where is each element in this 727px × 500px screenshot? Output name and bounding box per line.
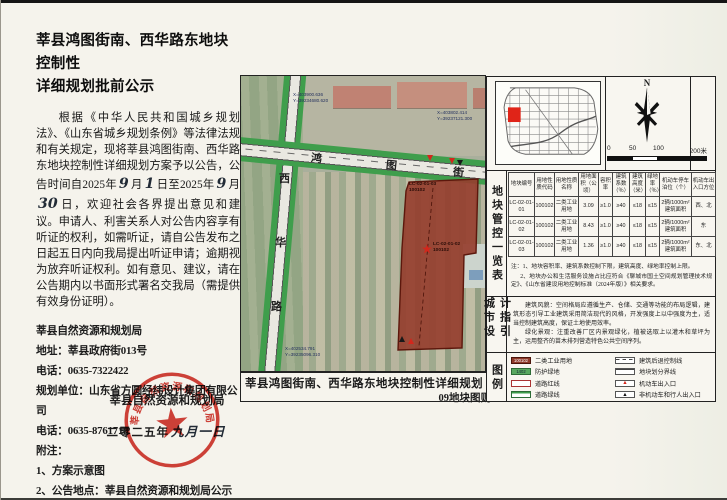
table-cell: ≤15 [646, 237, 660, 257]
table-cell: 二类工业用地 [555, 197, 579, 217]
table-cell: 2辆/1000m²建筑面积 [660, 217, 692, 237]
table-cell: 100102 [535, 217, 555, 237]
control-table-section: 地块管控一览表 地块编号用地性质代码用地性质名称用地面积（公顷）容积率建筑系数（… [487, 171, 715, 297]
parcel-usecode: 100102 [409, 188, 436, 194]
scan-edge-top [0, 0, 727, 3]
legend-item: 建筑后退控制线 [615, 356, 713, 364]
table-cell: 3.09 [579, 197, 599, 217]
table-cell: ≤18 [630, 197, 646, 217]
announcement-paragraph: 根据《中华人民共和国城乡规划法》、《山东省城乡规划条例》等法律法规和有关规定，现… [36, 110, 240, 310]
table-cell: LC-02-01-03 [509, 237, 535, 257]
map-sheet-number: 09地块图则 [241, 390, 501, 405]
table-header-cell: 建筑系数（％） [613, 173, 630, 197]
table-cell: ≥40 [613, 237, 630, 257]
urban-design-text: 建筑风貌：空间格局应遵循生产、仓储、交通等功能的布局逻辑，建筑形态引导工业建筑采… [513, 302, 710, 347]
table-row: LC-02-01-02100102二类工业用地8.43≥1.0≥40≤18≤15… [509, 217, 716, 237]
table-cell: 东、北 [692, 237, 716, 257]
table-notes: 注：1、地块容积率、建筑系数控制下限，建筑高度、绿地率控制上限。 2、地块办公和… [511, 263, 712, 291]
official-seal: 莘县自然资源和规划局 [115, 363, 229, 477]
table-cell: ≤15 [646, 197, 660, 217]
legend-item: 地块划分界线 [615, 368, 713, 376]
legend-col-left: 100102二类工业用地1402防护绿地道路红线道路绿线 [511, 356, 609, 399]
legend-label: 道路红线 [535, 379, 560, 388]
scale-tick-label: 0 [607, 145, 611, 152]
handwritten-month: 9 [117, 176, 131, 192]
control-table-head: 地块编号用地性质代码用地性质名称用地面积（公顷）容积率建筑系数（％）建筑高度（米… [509, 173, 716, 197]
road-name-char: 华 [275, 234, 286, 250]
legend-label: 非机动车和行人出入口 [639, 390, 701, 399]
legend-swatch-setback-icon [615, 357, 635, 364]
legend-col-right: 建筑后退控制线地块划分界线▲机动车出入口▲非机动车和行人出入口 [615, 356, 713, 399]
scale-tick-label: 100 [653, 145, 664, 152]
road-name-char: 街 [452, 163, 465, 180]
handwritten-month: 9 [215, 176, 229, 192]
road-name-char: 图 [385, 156, 398, 173]
legend-item: 100102二类工业用地 [511, 356, 609, 364]
legend-section: 图例 100102二类工业用地1402防护绿地道路红线道路绿线 建筑后退控制线地… [487, 353, 715, 402]
page-title-line2: 详细规划批前公示 [36, 76, 240, 99]
parcel-usecode: 100102 [433, 248, 460, 254]
section-label-control-table: 地块管控一览表 [487, 171, 507, 296]
site-location-marker [508, 107, 521, 122]
table-header-cell: 建筑高度（米） [630, 173, 646, 197]
scale-tick-label: 50 [629, 145, 636, 152]
section-label-legend: 图例 [487, 353, 507, 402]
handwritten-day: 1 [143, 176, 157, 192]
legend-label: 防护绿地 [535, 367, 560, 376]
table-cell: ≥40 [613, 217, 630, 237]
table-cell: 二类工业用地 [555, 217, 579, 237]
table-row: LC-02-01-01100102二类工业用地3.09≥1.0≥40≤18≤15… [509, 197, 716, 217]
map-title: 莘县鸿图街南、西华路东地块控制性详细规划 [241, 373, 501, 391]
table-header-cell: 用地面积（公顷） [579, 173, 599, 197]
parcel-label: LC-02-01-03 100102 [409, 182, 436, 194]
plan-map: 鸿 图 街 西 华 路 X=403900.636 Y=39234680.620 … [240, 75, 486, 372]
table-cell: ≥1.0 [599, 197, 613, 217]
inset-map-drawing [496, 82, 600, 164]
table-header-cell: 用地性质名称 [555, 173, 579, 197]
scale-bar: 0 50 100 200米 [607, 145, 707, 167]
control-table-body: LC-02-01-01100102二类工业用地3.09≥1.0≥40≤18≤15… [509, 197, 716, 257]
table-cell: 二类工业用地 [555, 237, 579, 257]
para-segment: 月 [131, 179, 143, 191]
table-header-cell: 地块编号 [509, 173, 535, 197]
legend-swatch-road-red-icon [511, 380, 531, 387]
table-cell: ≥1.0 [599, 237, 613, 257]
legend-item: 道路红线 [511, 379, 609, 387]
table-note-line: 2、地块办公和生活服务设施占比应符合《聊城市国土空间规划管理技术规定》、《山东省… [511, 273, 712, 290]
legend-label: 机动车出入口 [639, 379, 676, 388]
scale-strip [607, 156, 707, 161]
legend: 100102二类工业用地1402防护绿地道路红线道路绿线 建筑后退控制线地块划分… [511, 356, 713, 399]
table-cell: ≤15 [646, 217, 660, 237]
vehicle-entry-marker [427, 155, 433, 161]
table-cell: 2辆/1000m²建筑面积 [660, 237, 692, 257]
table-cell: 8.43 [579, 217, 599, 237]
scan-edge-left [0, 0, 1, 500]
parcel-label: LC-02-01-02 100102 [433, 242, 460, 254]
urban-design-section: 城市设计指引 建筑风貌：空间格局应遵循生产、仓储、交通等功能的布局逻辑，建筑形态… [487, 297, 715, 353]
location-inset-map [495, 81, 601, 165]
section-label-urban-design: 城市设计指引 [487, 297, 507, 352]
table-cell: 西、北 [692, 197, 716, 217]
compass-icon [629, 86, 665, 144]
table-header-cell: 机动车停车泊位（个） [660, 173, 692, 197]
seal-star-icon [155, 406, 189, 439]
legend-label: 道路绿线 [535, 390, 560, 399]
table-cell: ≤18 [630, 237, 646, 257]
control-table: 地块编号用地性质代码用地性质名称用地面积（公顷）容积率建筑系数（％）建筑高度（米… [508, 172, 716, 257]
design-paragraph: 建筑风貌：空间格局应遵循生产、仓储、交通等功能的布局逻辑，建筑形态引导工业建筑采… [513, 302, 710, 329]
map-title-block: 莘县鸿图街南、西华路东地块控制性详细规划 09地块图则 [240, 372, 502, 402]
legend-swatch-protect-green-icon: 1402 [511, 368, 531, 375]
road-name-char: 鸿 [310, 149, 323, 166]
page-title-line1: 莘县鸿图街南、西华路东地块控制性 [36, 30, 240, 76]
coordinate-label: X=402534.791 Y=39235096.310 [285, 346, 320, 358]
table-cell: ≥1.0 [599, 217, 613, 237]
contact-line: 2、公告地点：莘县自然资源和规划局公示栏及网站、项目现场。 [36, 482, 240, 500]
road-name-char: 西 [279, 170, 290, 186]
coordinate-label: X=403802.414 Y=39237121.300 [437, 110, 472, 122]
section-divider [605, 77, 606, 171]
table-note-line: 注：1、地块容积率、建筑系数控制下限，建筑高度、绿地率控制上限。 [511, 263, 712, 272]
locator-section: N 0 50 100 200米 [487, 77, 715, 171]
handwritten-day: 30 [36, 196, 60, 212]
table-cell: ≤18 [630, 217, 646, 237]
table-cell: 2辆/1000m²建筑面积 [660, 197, 692, 217]
scale-labels: 0 50 100 200米 [607, 145, 707, 154]
table-cell: LC-02-01-02 [509, 217, 535, 237]
regulation-panel: N 0 50 100 200米 地块管控一览表 [486, 76, 716, 402]
para-segment: 月 [228, 179, 240, 191]
coordinate-y: Y=39234680.620 [293, 98, 328, 104]
page-title: 莘县鸿图街南、西华路东地块控制性 详细规划批前公示 [36, 30, 240, 100]
road-name-char: 路 [271, 298, 282, 314]
legend-label: 建筑后退控制线 [639, 356, 682, 365]
table-header-cell: 容积率 [599, 173, 613, 197]
legend-label: 二类工业用地 [535, 356, 572, 365]
table-cell: 100102 [535, 237, 555, 257]
table-cell: 东 [692, 217, 716, 237]
table-header-cell: 绿地率（％） [646, 173, 660, 197]
contact-line: 地址：莘县政府街013号 [36, 342, 240, 362]
para-segment: 日至2025年 [157, 179, 215, 191]
coordinate-y: Y=39237121.300 [437, 116, 472, 122]
notice-sheet: 莘县鸿图街南、西华路东地块控制性 详细规划批前公示 根据《中华人民共和国城乡规划… [0, 0, 727, 500]
contact-line: 莘县自然资源和规划局 [36, 322, 240, 342]
legend-item: 道路绿线 [511, 391, 609, 399]
table-header-cell: 用地性质代码 [535, 173, 555, 197]
parcel-polygon [398, 179, 478, 350]
table-row: LC-02-01-03100102二类工业用地1.36≥1.0≥40≤18≤15… [509, 237, 716, 257]
para-segment: 日，欢迎社会各界提出意见和建议。申请人、利害关系人对公告内容享有听证的权利，如需… [36, 199, 240, 308]
legend-item: ▲非机动车和行人出入口 [615, 391, 713, 399]
table-cell: 1.36 [579, 237, 599, 257]
legend-swatch-boundary-icon [615, 368, 635, 375]
legend-swatch-entry-red-icon: ▲ [615, 380, 635, 387]
scale-tick-label: 200米 [690, 145, 707, 155]
legend-swatch-industrial-icon: 100102 [511, 357, 531, 364]
legend-label: 地块划分界线 [639, 367, 676, 376]
table-cell: LC-02-01-01 [509, 197, 535, 217]
coordinate-y: Y=39235096.310 [285, 352, 320, 358]
coordinate-label: X=403900.636 Y=39234680.620 [293, 92, 328, 104]
design-paragraph: 绿化景观：注重改善厂区内景观绿化，植被选取上以灌木和草坪为主，运用整齐的苗木排列… [513, 329, 710, 347]
legend-item: 1402防护绿地 [511, 368, 609, 376]
control-table-wrap: 地块编号用地性质代码用地性质名称用地面积（公顷）容积率建筑系数（％）建筑高度（米… [508, 172, 714, 257]
legend-item: ▲机动车出入口 [615, 379, 713, 387]
table-cell: 100102 [535, 197, 555, 217]
table-cell: ≥40 [613, 197, 630, 217]
table-header-cell: 机动车出入口方位 [692, 173, 716, 197]
legend-swatch-road-green-icon [511, 391, 531, 398]
legend-swatch-entry-black-icon: ▲ [615, 391, 635, 398]
